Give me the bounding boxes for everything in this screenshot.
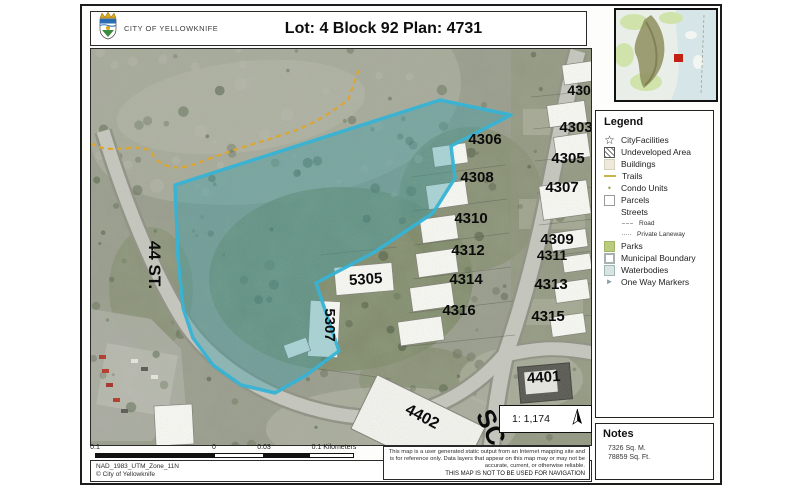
overview-inset-map	[614, 8, 718, 102]
map-label: 4309	[540, 231, 573, 248]
legend-panel: Legend CityFacilitiesUndeveloped AreaBui…	[595, 110, 714, 418]
map-label: 44 ST.	[145, 241, 164, 289]
legend-item-label: Trails	[622, 171, 642, 181]
parcel-legend-icon	[604, 195, 615, 206]
legend-item: Undeveloped Area	[604, 146, 713, 158]
notes-lines: 7326 Sq. M.78859 Sq. Ft.	[603, 445, 713, 462]
map-label: 4314	[449, 271, 483, 288]
building-legend-icon	[604, 159, 615, 170]
map-label: 4401	[526, 368, 560, 387]
water-legend-icon	[604, 265, 615, 276]
legend-item: Parcels	[604, 194, 713, 206]
legend-item-label: Parks	[621, 241, 643, 251]
legend-item: Parks	[604, 240, 713, 252]
map-label: 4303	[559, 119, 592, 136]
notes-line: 78859 Sq. Ft.	[608, 454, 713, 463]
legend-item: Streets	[604, 206, 713, 218]
map-label: 4313	[534, 276, 567, 293]
legend-item: Road	[622, 218, 713, 229]
main-map: 4301430343054307430943114313431543064308…	[90, 48, 592, 446]
legend-item-label: Parcels	[621, 195, 649, 205]
legend-item-label: One Way Markers	[621, 277, 689, 287]
hatch-legend-icon	[604, 147, 615, 158]
map-label: 4306	[468, 131, 501, 148]
legend-item: Buildings	[604, 158, 713, 170]
map-label: 4307	[545, 179, 578, 196]
header-bar: CITY OF YELLOWKNIFE Lot: 4 Block 92 Plan…	[90, 11, 587, 46]
disclaimer-box: This map is a user generated static outp…	[383, 446, 590, 480]
oneway-legend-icon	[604, 277, 615, 288]
scale-ratio-value: 1: 1,174	[512, 413, 572, 425]
legend-item-label: Streets	[621, 207, 648, 217]
notes-line: 7326 Sq. M.	[608, 445, 713, 454]
map-label: 4311	[537, 247, 568, 263]
legend-item: Trails	[604, 170, 713, 182]
map-label: 4315	[531, 308, 564, 325]
legend-item-label: Waterbodies	[621, 265, 668, 275]
legend-title: Legend	[604, 116, 713, 128]
map-label: 4308	[460, 169, 493, 186]
legend-item-label: Undeveloped Area	[621, 147, 691, 157]
dot-legend-icon	[604, 183, 615, 194]
legend-item: CityFacilities	[604, 134, 713, 146]
muni-legend-icon	[604, 253, 615, 264]
scale-bar-label: 0.1 Kilometers	[312, 444, 357, 451]
scale-bar-label: 0	[212, 444, 216, 451]
dash-legend-icon	[604, 175, 616, 177]
map-label: 5307	[321, 308, 338, 341]
legend-item-label: Condo Units	[621, 183, 668, 193]
inset-location-marker	[674, 54, 683, 62]
legend-item-label: CityFacilities	[621, 135, 669, 145]
legend-item-label: Road	[639, 220, 655, 227]
roaddash-legend-icon	[622, 223, 633, 224]
legend-item: Waterbodies	[604, 264, 713, 276]
map-label: 4305	[551, 150, 584, 167]
legend-item-label: Buildings	[621, 159, 656, 169]
page-title: Lot: 4 Block 92 Plan: 4731	[91, 20, 586, 38]
legend-item-label: Municipal Boundary	[621, 253, 696, 263]
north-arrow-icon	[572, 408, 583, 431]
legend-item: Private Laneway	[622, 229, 713, 240]
legend-item: Municipal Boundary	[604, 252, 713, 264]
notes-title: Notes	[603, 428, 713, 440]
disclaimer-text: This map is a user generated static outp…	[388, 449, 585, 470]
legend-item-label: Private Laneway	[637, 231, 685, 238]
legend-item: One Way Markers	[604, 276, 713, 288]
parks-legend-icon	[604, 241, 615, 252]
legend-items: CityFacilitiesUndeveloped AreaBuildingsT…	[604, 134, 713, 288]
map-label: 4316	[442, 302, 475, 319]
disclaimer-warning: THIS MAP IS NOT TO BE USED FOR NAVIGATIO…	[388, 470, 585, 478]
legend-item: Condo Units	[604, 182, 713, 194]
scale-ratio-box: 1: 1,174	[499, 405, 592, 433]
scale-bar-label: 0.1	[90, 444, 100, 451]
map-label: 4310	[454, 210, 487, 227]
map-label: 4312	[451, 242, 484, 259]
lanedash-legend-icon	[622, 234, 631, 235]
aerial-photo: 4301430343054307430943114313431543064308…	[91, 49, 592, 446]
star-legend-icon	[604, 135, 615, 146]
map-label: 4301	[567, 82, 592, 98]
map-sheet: CITY OF YELLOWKNIFE Lot: 4 Block 92 Plan…	[80, 4, 722, 485]
scale-bar-label: 0.03	[257, 444, 271, 451]
notes-panel: Notes 7326 Sq. M.78859 Sq. Ft.	[595, 423, 714, 480]
map-label: 5305	[348, 270, 382, 289]
